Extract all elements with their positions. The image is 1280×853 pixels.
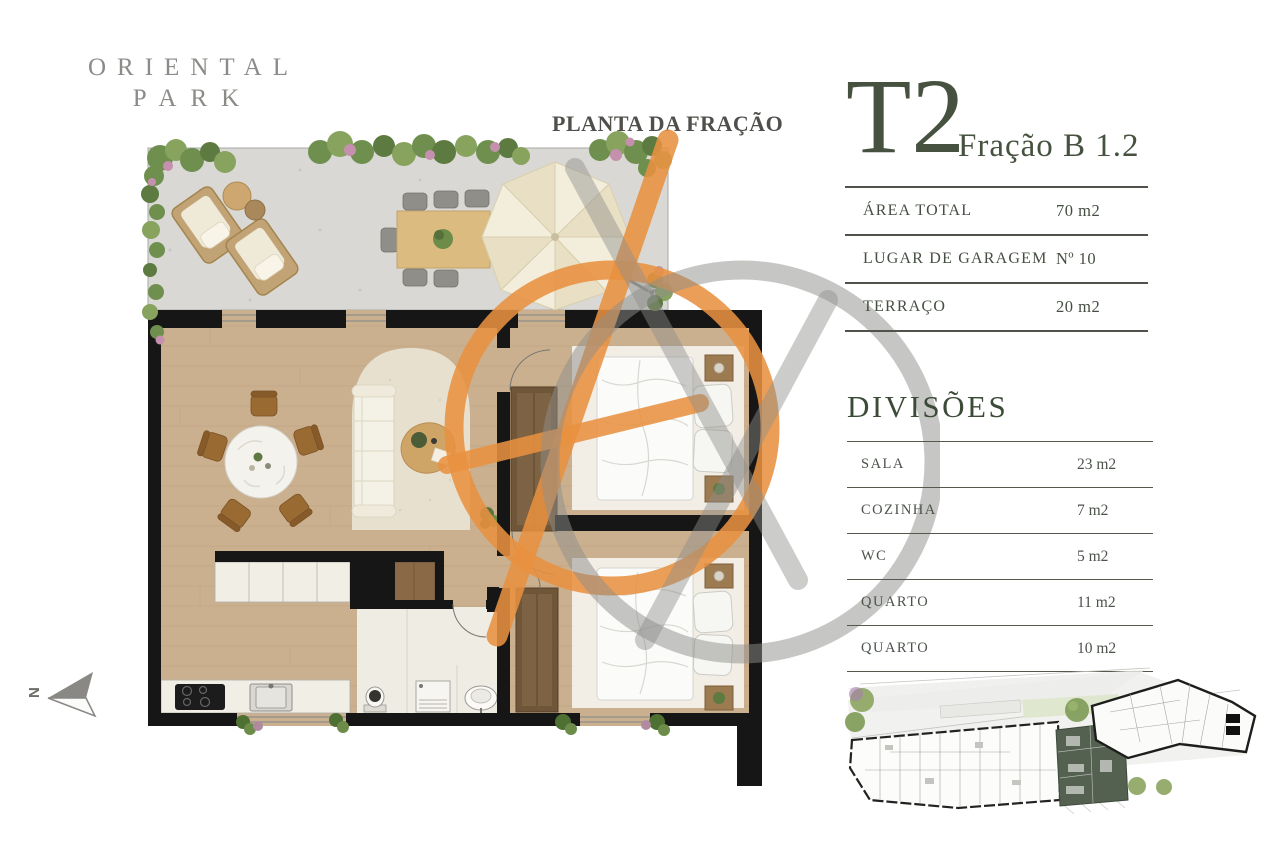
division-value: 23 m2 [1077,456,1153,474]
bathroom [357,607,507,716]
division-row: COZINHA 7 m2 [847,487,1153,533]
division-label: QUARTO [847,640,1077,657]
divisions-heading: DIVISÕES [847,389,1008,425]
kitchen-sink [250,684,292,712]
division-label: SALA [847,456,1077,473]
cooktop [175,684,225,710]
division-value: 10 m2 [1077,640,1153,658]
spec-row: LUGAR DE GARAGEM Nº 10 [845,234,1148,282]
division-row: QUARTO 11 m2 [847,579,1153,625]
spec-row: ÁREA TOTAL 70 m2 [845,186,1148,234]
division-label: WC [847,548,1077,565]
division-row: WC 5 m2 [847,533,1153,579]
division-row: SALA 23 m2 [847,441,1153,487]
shower [416,681,450,712]
division-value: 7 m2 [1077,502,1153,520]
north-label: N [26,687,43,698]
divisions-table: SALA 23 m2 COZINHA 7 m2 WC 5 m2 QUARTO 1… [847,441,1153,672]
spec-row: TERRAÇO 20 m2 [845,282,1148,330]
spec-value: 70 m2 [1056,201,1148,221]
spec-table: ÁREA TOTAL 70 m2 LUGAR DE GARAGEM Nº 10 … [845,186,1148,332]
spec-label: ÁREA TOTAL [845,202,1056,220]
division-label: COZINHA [847,502,1077,519]
spec-label: LUGAR DE GARAGEM [845,250,1056,268]
unit-fraction: Fração B 1.2 [958,128,1140,165]
north-arrow-icon: N [26,672,95,716]
brochure-page: ORIENTAL PARK PLANTA DA FRAÇÃO [0,0,1280,853]
division-value: 5 m2 [1077,548,1153,566]
spec-value: Nº 10 [1056,249,1148,269]
sofa [352,385,396,517]
unit-type: T2 [846,64,965,171]
floor-plan: N [0,0,940,820]
side-table [245,200,265,220]
spec-value: 20 m2 [1056,297,1148,317]
keyplan [845,665,1270,853]
spec-label: TERRAÇO [845,298,1056,316]
division-label: QUARTO [847,594,1077,611]
division-value: 11 m2 [1077,594,1153,612]
